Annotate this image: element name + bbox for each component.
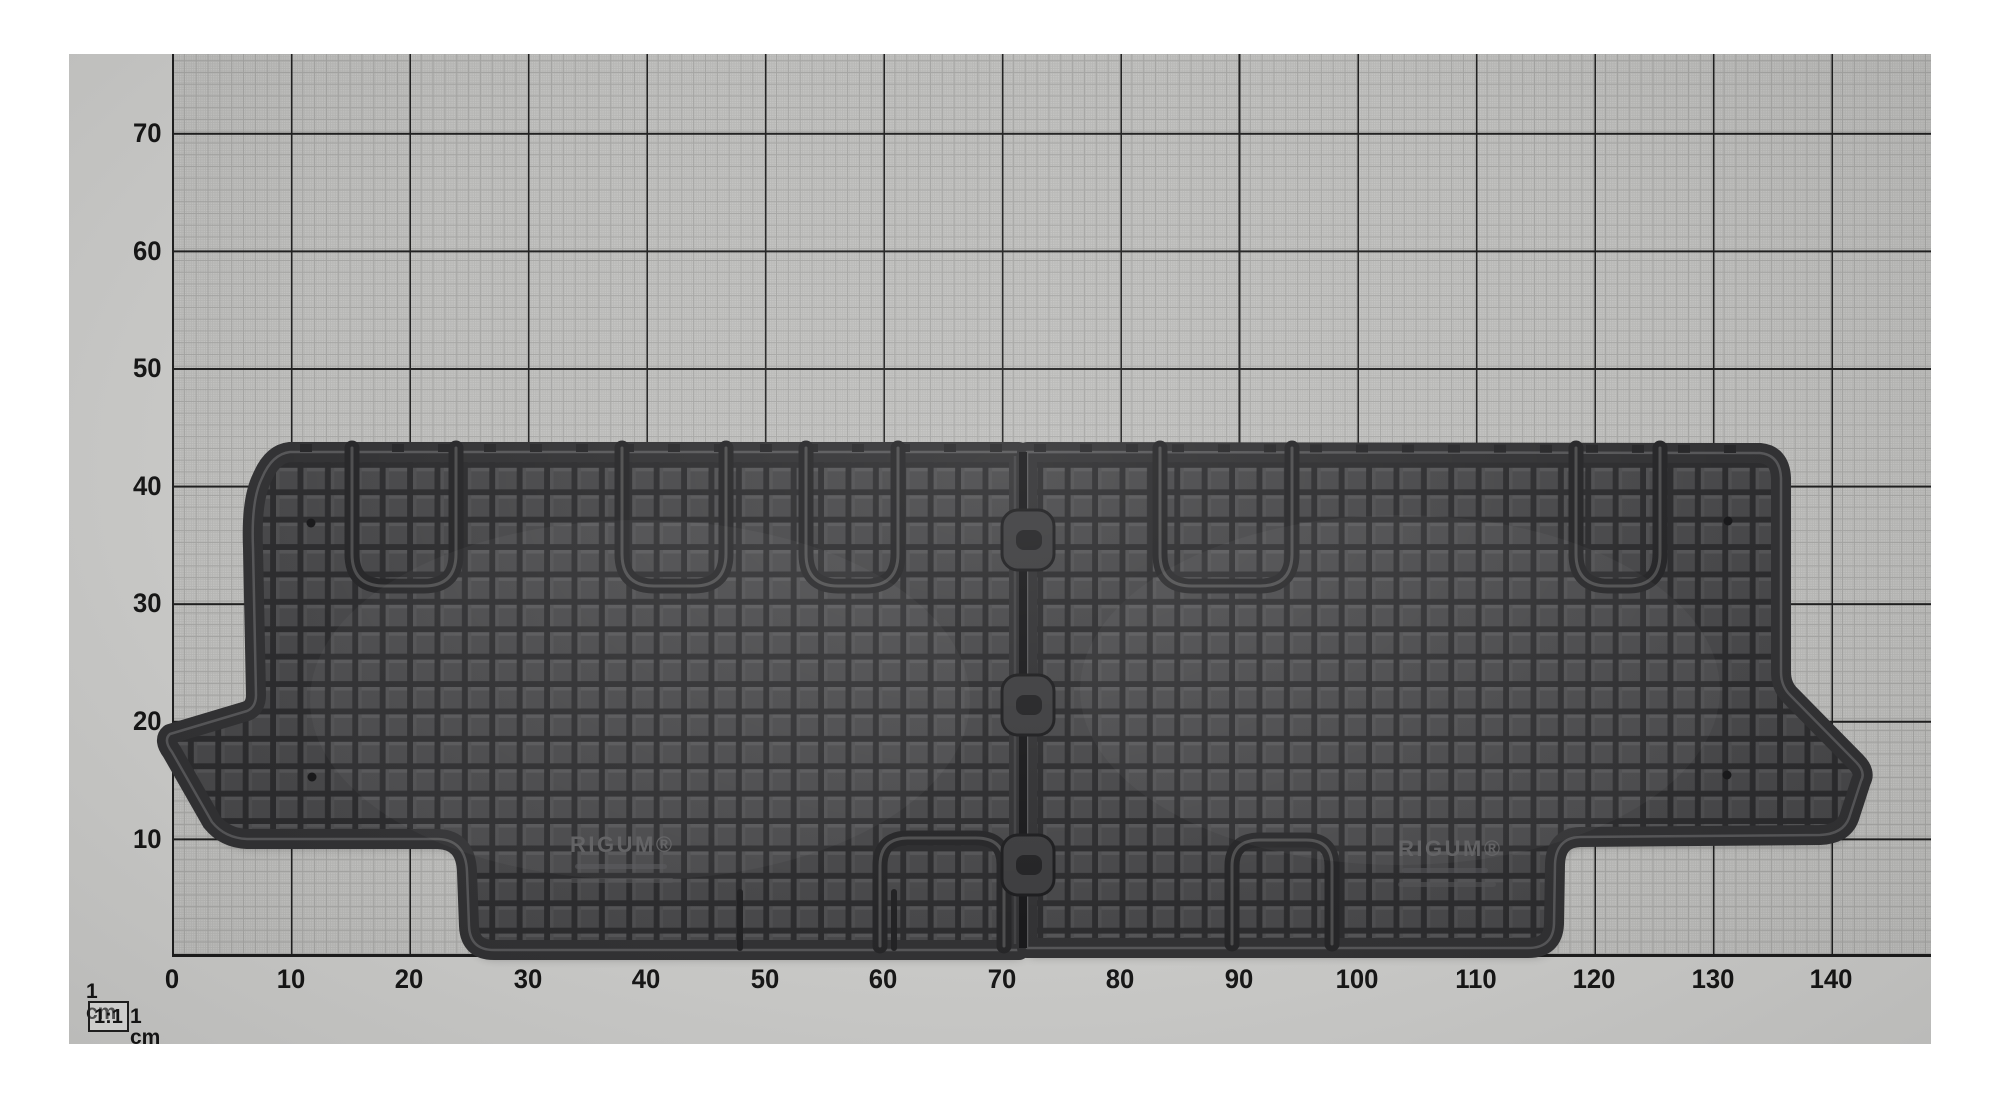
unit-note-bottom: 1 cm [130, 1006, 160, 1048]
brand-smalltext-line [1402, 868, 1488, 873]
brand-smalltext-line [1398, 882, 1496, 887]
rubber-mat-photo: RIGUM® RIGUM® [0, 0, 2000, 1108]
seam-hinge-connectors [1002, 510, 1054, 895]
mat-centre-seam [1002, 452, 1054, 948]
product-measurement-photo: 0102030405060708090100110120130140 70605… [0, 0, 2000, 1108]
scale-ratio-badge: 1:1 [88, 1001, 129, 1032]
